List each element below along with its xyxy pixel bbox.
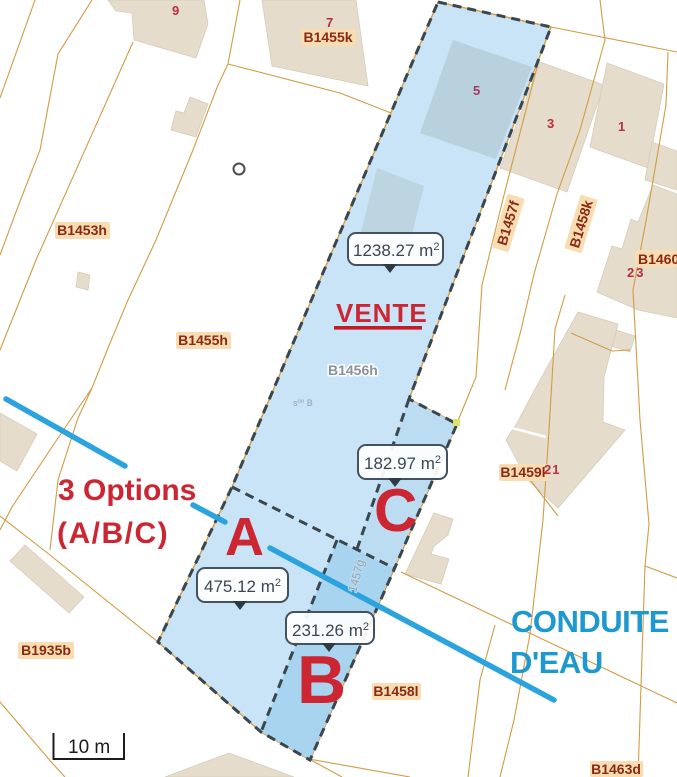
svg-text:B1456h: B1456h [328, 362, 378, 378]
svg-text:D'EAU: D'EAU [510, 645, 603, 680]
svg-text:B: B [297, 642, 346, 718]
svg-text:B1459l: B1459l [500, 464, 545, 480]
svg-text:7: 7 [326, 15, 333, 30]
svg-text:(A/B/C): (A/B/C) [57, 517, 169, 550]
svg-text:5: 5 [473, 83, 480, 98]
svg-text:475.12 m2: 475.12 m2 [204, 577, 281, 596]
svg-text:CONDUITE: CONDUITE [511, 604, 669, 639]
svg-text:10 m: 10 m [68, 737, 110, 758]
svg-text:3: 3 [547, 116, 554, 131]
svg-text:B1463d: B1463d [591, 761, 641, 777]
svg-text:B1458l: B1458l [373, 683, 418, 699]
svg-text:1: 1 [618, 119, 625, 134]
svg-text:B1455k: B1455k [303, 29, 352, 45]
svg-text:23: 23 [627, 265, 645, 280]
svg-text:3 Options: 3 Options [58, 474, 196, 507]
svg-text:9: 9 [172, 3, 179, 18]
svg-text:21: 21 [544, 462, 560, 477]
svg-text:C: C [374, 477, 417, 544]
svg-text:1238.27 m2: 1238.27 m2 [353, 241, 439, 260]
svg-text:B1453h: B1453h [57, 222, 107, 238]
svg-text:231.26 m2: 231.26 m2 [292, 621, 369, 640]
svg-text:B1935b: B1935b [21, 642, 71, 658]
svg-text:B1455h: B1455h [178, 332, 228, 348]
svg-text:182.97 m2: 182.97 m2 [364, 454, 441, 473]
svg-text:VENTE: VENTE [336, 298, 428, 328]
svg-text:A: A [225, 507, 264, 567]
